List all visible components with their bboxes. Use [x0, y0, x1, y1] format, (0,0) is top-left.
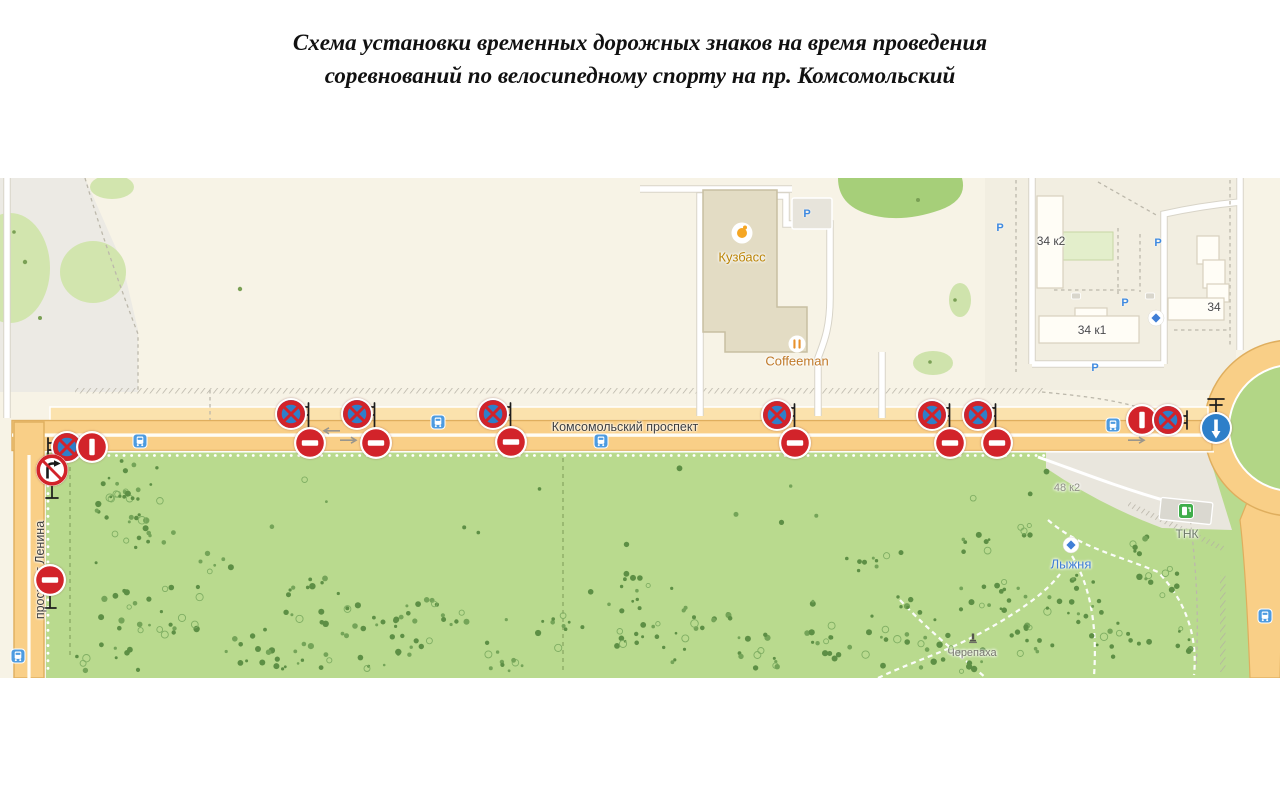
map-canvas[interactable]: Комсомольский проспектпроспект ЛенинаКуз… [0, 178, 1280, 678]
scheme-title: Схема установки временных дорожных знако… [0, 26, 1280, 92]
bus-stop-icon [1106, 418, 1121, 433]
scheme-title-line1: Схема установки временных дорожных знако… [0, 26, 1280, 59]
tnk-label: ТНК [1176, 527, 1199, 541]
coffeeman-label: Coffeeman [765, 354, 828, 369]
no-entry-sign [293, 426, 327, 460]
parking-icon: P [1121, 297, 1128, 309]
parking-icon: P [1154, 237, 1161, 249]
bus-stop-icon [133, 434, 148, 449]
kuzbass-icon [731, 222, 753, 244]
lyzhnya-icon [1063, 537, 1080, 554]
no-entry-sign [980, 426, 1014, 460]
go-straight-sign [1199, 411, 1233, 445]
bus-stop-icon [1258, 609, 1273, 624]
no-right-turn-sign [35, 453, 69, 487]
bus-stop-icon [431, 415, 446, 430]
tnk-icon [1178, 503, 1194, 519]
no-entry-sign [778, 426, 812, 460]
no-stopping-sign [1151, 403, 1185, 437]
kuzbass-label: Кузбасс [718, 250, 765, 265]
entrance-icon [1145, 293, 1155, 300]
parking-icon: P [996, 222, 1003, 234]
no-entry-sign [33, 563, 67, 597]
page: { "title": { "line1": "Схема установки в… [0, 0, 1280, 794]
lyzhnya-label: Лыжня [1051, 557, 1092, 572]
entrance-icon [1071, 293, 1081, 300]
bus-stop-icon [11, 649, 26, 664]
cherepaha-icon [967, 633, 979, 646]
house-34k2-label: 34 к2 [1037, 234, 1066, 248]
house-34k1-label: 34 к1 [1078, 323, 1107, 337]
scheme-title-line2: соревнований по велосипедному спорту на … [0, 59, 1280, 92]
road-label: Комсомольский проспект [552, 420, 698, 434]
cherepaha-label: Черепаха [947, 647, 996, 659]
parking-icon: P [1091, 362, 1098, 374]
house-34-label: 34 [1207, 300, 1220, 314]
no-entry-sign [494, 425, 528, 459]
house-48k2-label: 48 к2 [1054, 482, 1080, 494]
parking-icon: P [803, 208, 810, 220]
no-entry-sign [359, 426, 393, 460]
coffeeman-icon [788, 335, 806, 353]
poi-diamond-icon [1148, 310, 1165, 327]
no-entry-sign [75, 430, 109, 464]
bus-stop-icon [594, 434, 609, 449]
